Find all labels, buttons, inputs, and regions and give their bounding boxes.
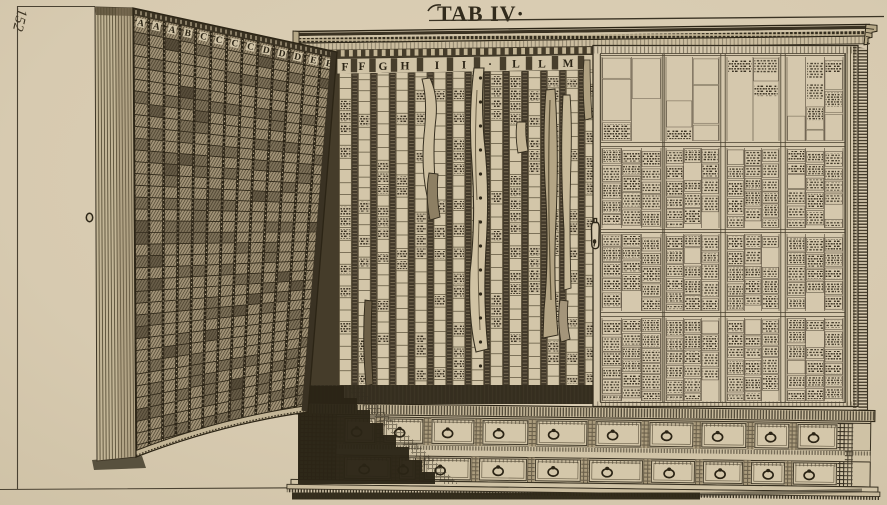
svg-text:I: I [435, 60, 440, 72]
svg-text:M: M [563, 58, 574, 70]
svg-text:L: L [538, 58, 546, 70]
svg-text:L: L [512, 59, 520, 71]
svg-text:H: H [401, 60, 410, 72]
svg-text:·: · [488, 59, 492, 71]
svg-text:F: F [358, 61, 365, 73]
svg-text:TAB IV·: TAB IV· [437, 1, 525, 26]
svg-text:I: I [462, 60, 467, 72]
svg-text:G: G [379, 61, 388, 73]
svg-text:F: F [341, 61, 348, 73]
